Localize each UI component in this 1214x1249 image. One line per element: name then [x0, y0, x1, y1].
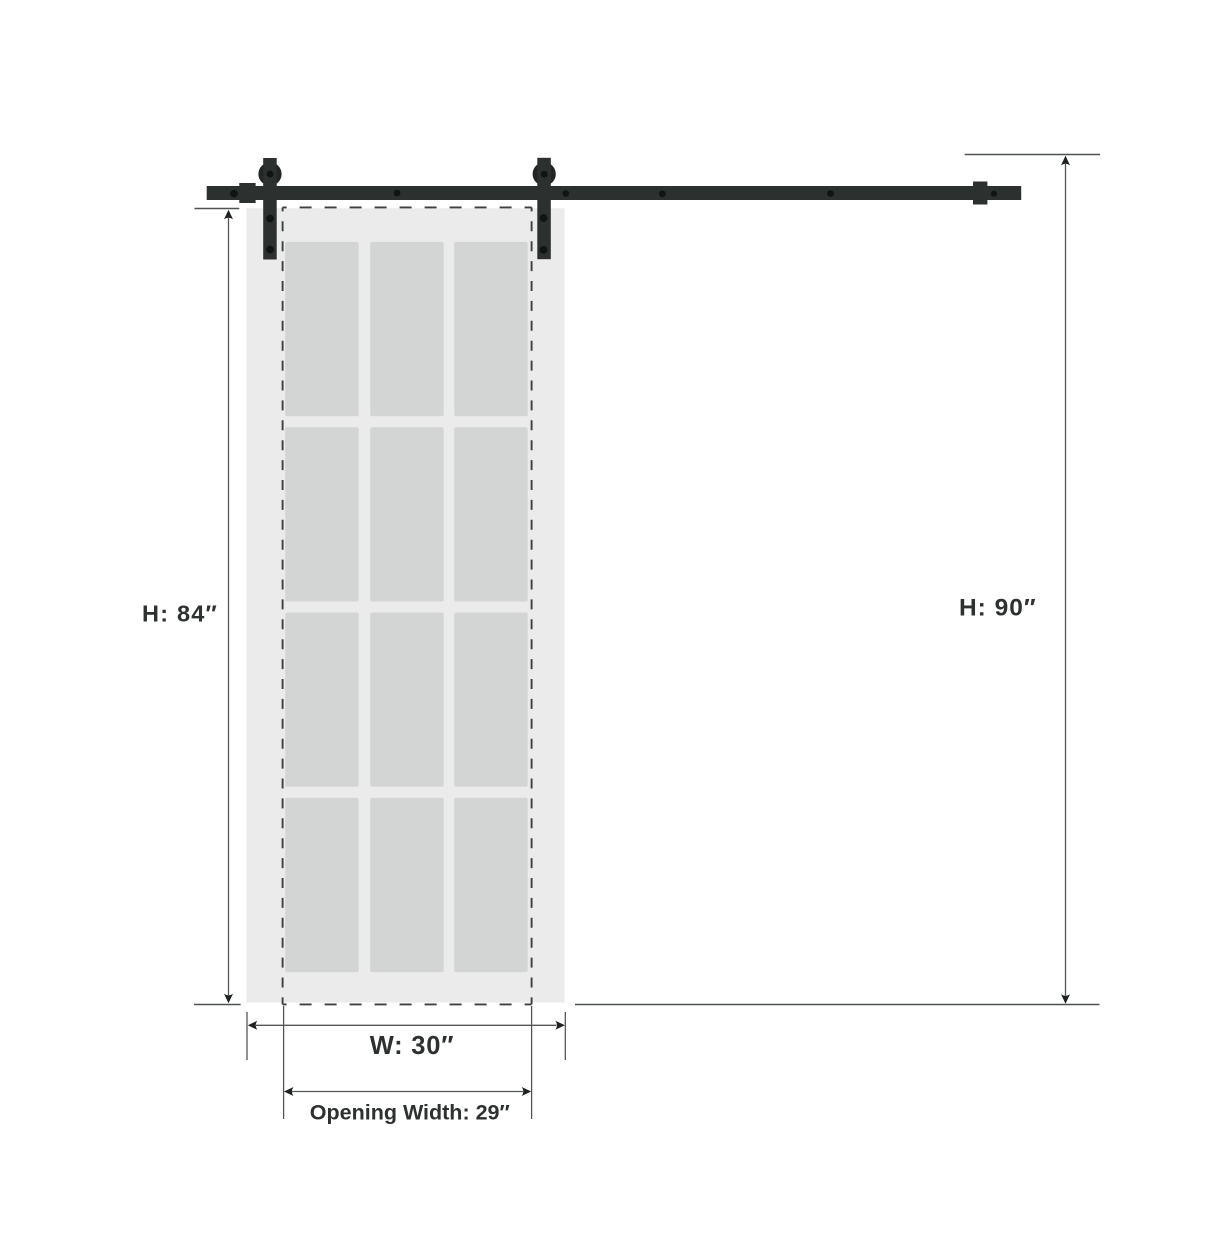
- svg-text:Opening Width: 29″: Opening Width: 29″: [310, 1101, 510, 1125]
- svg-text:W: 30″: W: 30″: [370, 1032, 455, 1060]
- svg-text:H: 84″: H: 84″: [142, 601, 218, 627]
- svg-text:H: 90″: H: 90″: [959, 595, 1037, 622]
